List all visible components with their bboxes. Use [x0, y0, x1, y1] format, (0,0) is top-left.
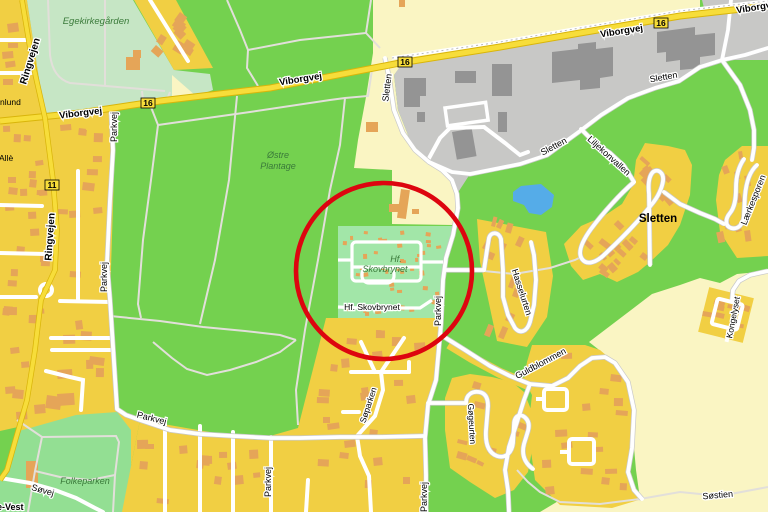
svg-text:Allè: Allè	[0, 153, 13, 163]
svg-text:Plantage: Plantage	[260, 161, 296, 171]
svg-text:Hf.: Hf.	[390, 254, 402, 264]
svg-text:Skovbrynet: Skovbrynet	[362, 264, 408, 274]
svg-text:16: 16	[143, 98, 153, 108]
svg-text:Hf. Skovbrynet: Hf. Skovbrynet	[344, 302, 400, 312]
svg-text:11: 11	[48, 180, 57, 190]
svg-text:nlund: nlund	[0, 97, 21, 107]
svg-text:16: 16	[400, 57, 410, 67]
svg-text:Østre: Østre	[266, 150, 289, 160]
svg-text:Parkvej: Parkvej	[263, 467, 273, 497]
svg-text:16: 16	[656, 18, 666, 28]
svg-text:Parkvej: Parkvej	[99, 262, 109, 292]
svg-text:Egekirkegården: Egekirkegården	[63, 16, 130, 27]
svg-text:e-Vest: e-Vest	[0, 502, 24, 512]
svg-text:Parkvej: Parkvej	[419, 482, 429, 512]
svg-text:Gøgeurten: Gøgeurten	[466, 403, 478, 444]
svg-text:Parkvej: Parkvej	[109, 112, 119, 142]
svg-text:Folkeparken: Folkeparken	[60, 476, 110, 486]
svg-text:Sletten: Sletten	[639, 213, 677, 225]
svg-text:Parkvej: Parkvej	[433, 296, 443, 326]
